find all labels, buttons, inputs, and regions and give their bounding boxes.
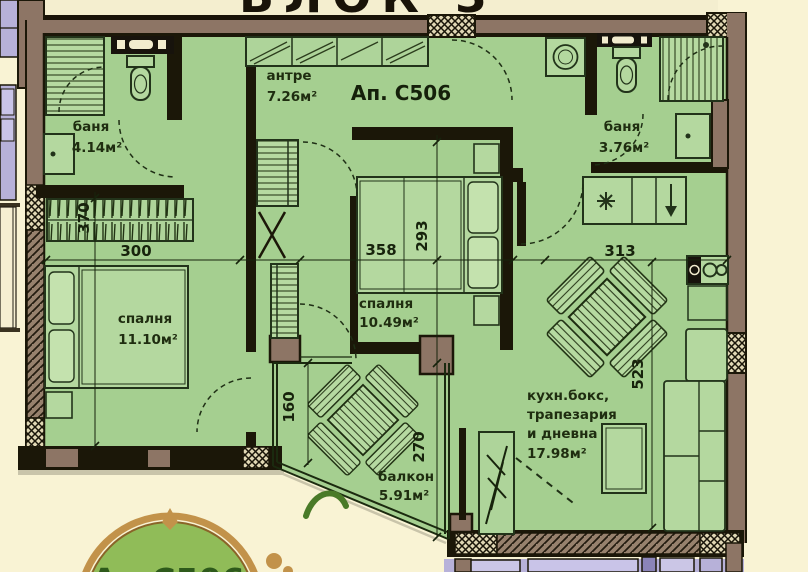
bedroom2-area: 10.49м² bbox=[359, 315, 419, 331]
bath1-name: баня bbox=[73, 119, 110, 135]
living-area: 17.98м² bbox=[527, 446, 587, 462]
toilet bbox=[127, 56, 154, 100]
nightstand bbox=[474, 296, 499, 325]
dim-313: 313 bbox=[604, 242, 635, 260]
block-banner: БЛОК 3 bbox=[45, 0, 718, 23]
dim-270: 270 bbox=[410, 431, 428, 462]
shower bbox=[46, 37, 104, 115]
washing-machine bbox=[546, 38, 585, 76]
badge-ornament-dot bbox=[266, 553, 282, 569]
bedroom2-name: спалня bbox=[359, 296, 413, 312]
washbasin bbox=[44, 134, 74, 174]
dim-358: 358 bbox=[365, 241, 396, 259]
dim-370: 370 bbox=[75, 202, 93, 233]
bath1-area: 4.14м² bbox=[72, 140, 122, 156]
floor-plan-page: БЛОК 3 bbox=[0, 0, 808, 572]
floor-plan: БЛОК 3 bbox=[0, 0, 808, 572]
entry-name: антре bbox=[266, 68, 311, 84]
balcony-name: балкон bbox=[378, 469, 434, 485]
dim-160: 160 bbox=[280, 391, 298, 422]
living-name-1: кухн.бокс, bbox=[527, 388, 609, 404]
dim-300: 300 bbox=[120, 242, 151, 260]
nightstand bbox=[46, 392, 72, 418]
tv-cabinet bbox=[479, 432, 514, 534]
bath2-name: баня bbox=[604, 119, 641, 135]
bedroom1-area: 11.10м² bbox=[118, 332, 178, 348]
apartment-title: Ап. C506 bbox=[351, 81, 451, 105]
dim-523: 523 bbox=[629, 358, 647, 389]
dim-293: 293 bbox=[413, 220, 431, 251]
double-bed bbox=[45, 266, 188, 388]
coffee-table bbox=[602, 424, 646, 493]
balcony-area: 5.91м² bbox=[379, 488, 429, 504]
badge-label: Ап C506 bbox=[92, 561, 245, 572]
bath2-area: 3.76м² bbox=[599, 140, 649, 156]
wardrobe bbox=[257, 140, 298, 206]
toilet bbox=[613, 47, 640, 92]
wardrobe bbox=[271, 264, 298, 338]
entry-area: 7.26м² bbox=[267, 89, 317, 105]
bedroom1-name: спалня bbox=[118, 311, 172, 327]
nightstand bbox=[474, 144, 499, 173]
living-name-2: трапезария bbox=[527, 407, 617, 423]
living-name-3: и дневна bbox=[527, 426, 598, 442]
washbasin bbox=[676, 114, 710, 158]
